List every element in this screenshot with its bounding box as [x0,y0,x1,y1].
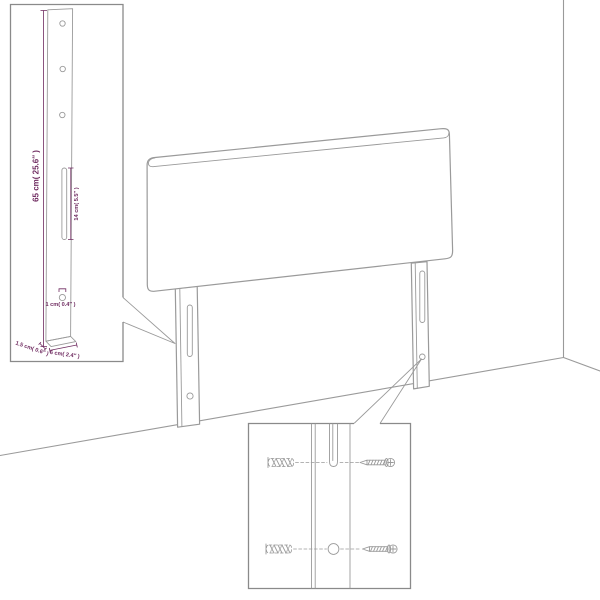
headboard-leg-right [411,262,429,389]
funnel-left [123,298,175,344]
dimension-hole-label: 1 cm( 0.4″ ) [45,302,75,308]
callout-lines-left-inset [123,298,175,344]
dimension-height-label: 65 cm( 25.6″ ) [32,150,41,202]
inset-wall-mounting [249,424,411,589]
leg-right-board [411,262,429,389]
diagram-canvas: 65 cm( 25.6″ ) 14 cm( 5.5″ ) 1 cm( 0.4″ … [0,0,600,600]
floor-line-right [564,358,600,372]
headboard-panel [147,129,453,292]
callout-lines-right-inset [354,359,422,424]
headboard-leg-left [175,286,199,427]
dimension-slot-label: 14 cm( 5.5″ ) [74,187,80,220]
funnel-right [354,359,422,424]
assembly-diagram: 65 cm( 25.6″ ) 14 cm( 5.5″ ) 1 cm( 0.4″ … [0,0,600,600]
inset-leg-dimensions: 65 cm( 25.6″ ) 14 cm( 5.5″ ) 1 cm( 0.4″ … [11,5,124,362]
panel-face [147,129,453,292]
